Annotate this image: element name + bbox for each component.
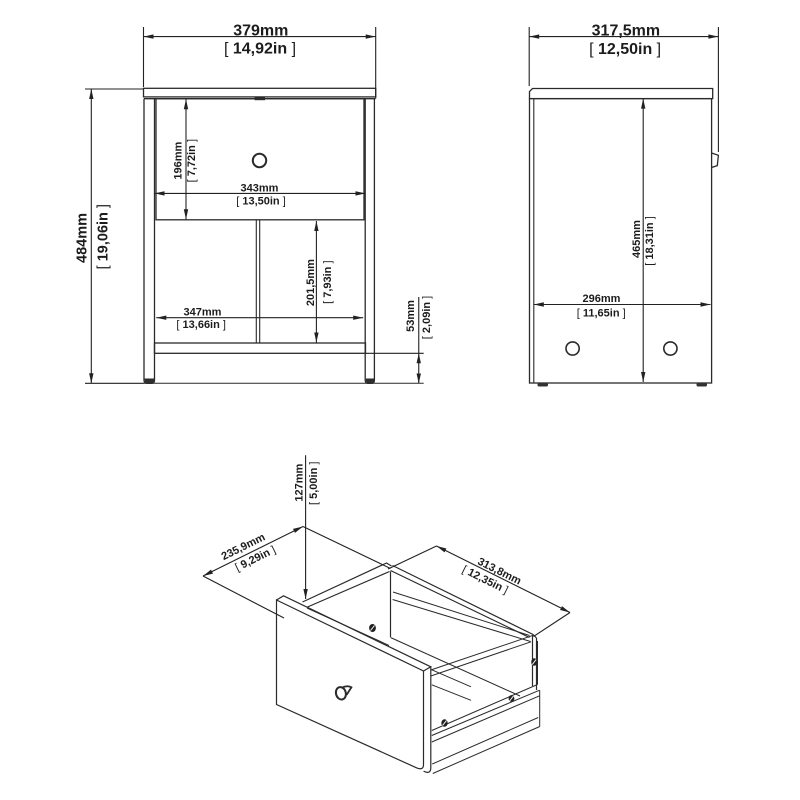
svg-text:379mm: 379mm (233, 23, 288, 40)
svg-text:347mm: 347mm (184, 307, 222, 319)
svg-text:[ 19,06in ]: [ 19,06in ] (96, 204, 112, 269)
svg-text:[ 7,72in ]: [ 7,72in ] (186, 139, 198, 182)
svg-text:[ 12,50in ]: [ 12,50in ] (589, 41, 661, 58)
svg-text:[ 11,65in ]: [ 11,65in ] (577, 308, 626, 320)
svg-text:[ 18,31in ]: [ 18,31in ] (644, 216, 656, 266)
svg-text:296mm: 296mm (583, 293, 621, 305)
svg-text:[ 5,00in ]: [ 5,00in ] (308, 462, 320, 505)
svg-text:317,5mm: 317,5mm (592, 23, 661, 40)
svg-text:343mm: 343mm (241, 183, 279, 195)
svg-text:[ 7,93in ]: [ 7,93in ] (322, 260, 334, 303)
svg-text:465mm: 465mm (631, 220, 643, 258)
svg-text:[ 13,66in ]: [ 13,66in ] (176, 319, 226, 331)
svg-text:[ 2,09in ]: [ 2,09in ] (421, 296, 433, 339)
svg-text:127mm: 127mm (293, 464, 305, 502)
svg-text:196mm: 196mm (173, 142, 185, 180)
svg-text:[ 13,50in ]: [ 13,50in ] (236, 196, 286, 208)
svg-text:201,5mm: 201,5mm (305, 259, 317, 306)
svg-text:53mm: 53mm (405, 300, 417, 332)
svg-text:[ 14,92in ]: [ 14,92in ] (224, 41, 296, 58)
svg-text:484mm: 484mm (74, 213, 90, 263)
